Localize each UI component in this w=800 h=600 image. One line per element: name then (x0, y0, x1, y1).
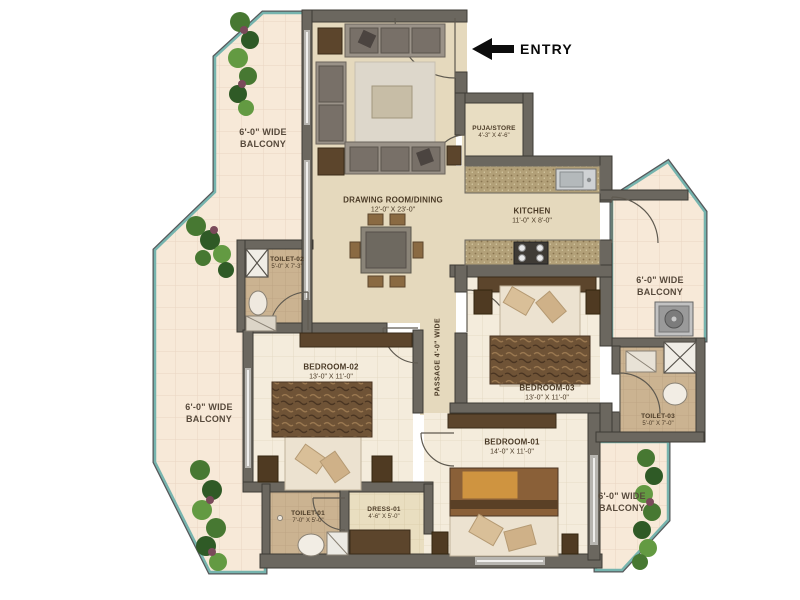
room-label-bedroom2: BEDROOM-02 13'-0" X 11'-0" (303, 362, 358, 381)
room-label-passage: PASSAGE 4'-0" WIDE (435, 318, 442, 396)
room-dims: 14'-0" X 11'-0" (484, 448, 539, 457)
room-name: KITCHEN (512, 206, 552, 216)
room-dims: 5'-0" X 7'-0" (641, 421, 675, 429)
room-dims: 11'-0" X 8'-0" (512, 217, 552, 226)
room-name: TOILET-03 (641, 413, 675, 421)
floor-plan: ENTRY DRAWING ROOM/DINING 12'-0" X 23'-0… (0, 0, 800, 600)
bed-bedroom2 (258, 382, 392, 490)
room-dims: 13'-0" X 11'-0" (519, 394, 574, 403)
sofa-set (316, 24, 445, 175)
room-name: TOILET-01 (291, 510, 325, 518)
kitchen-sink (556, 169, 596, 190)
room-label-dress: DRESS-01 4'-6" X 5'-0" (367, 506, 400, 522)
room-label-drawing: DRAWING ROOM/DINING 12'-0" X 23'-0" (343, 195, 443, 214)
room-dims: 13'-0" X 11'-0" (303, 373, 358, 382)
entry-arrow-icon (472, 38, 514, 60)
room-dims: 4'-6" X 5'-0" (367, 514, 400, 522)
bed-bedroom1 (432, 468, 578, 556)
room-name: DRESS-01 (367, 506, 400, 514)
room-label-toilet2: TOILET-02 5'-0" X 7'-3" (270, 256, 304, 272)
room-name: DRAWING ROOM/DINING (343, 195, 443, 205)
room-name: BEDROOM-01 (484, 437, 539, 447)
room-dims: 7'-0" X 5'-0" (291, 518, 325, 526)
ac-unit (655, 302, 693, 336)
room-dims: 5'-0" X 7'-3" (270, 264, 304, 272)
room-dims: 4'-3" X 4'-6" (472, 133, 515, 141)
balcony-label-right: 6'-0" WIDE BALCONY (629, 274, 691, 298)
balcony-label-top-left: 6'-0" WIDE BALCONY (232, 126, 294, 150)
room-label-kitchen: KITCHEN 11'-0" X 8'-0" (512, 206, 552, 225)
room-label-puja: PUJA/STORE 4'-3" X 4'-6" (472, 125, 515, 141)
room-label-bedroom3: BEDROOM-03 13'-0" X 11'-0" (519, 383, 574, 402)
room-name: PUJA/STORE (472, 125, 515, 133)
room-label-toilet1: TOILET-01 7'-0" X 5'-0" (291, 510, 325, 526)
stove (514, 242, 548, 264)
room-name: BEDROOM-02 (303, 362, 358, 372)
balcony-label-left: 6'-0" WIDE BALCONY (178, 401, 240, 425)
entry-label: ENTRY (520, 41, 573, 57)
room-label-toilet3: TOILET-03 5'-0" X 7'-0" (641, 413, 675, 429)
balcony-label-bottom-right: 6'-0" WIDE BALCONY (591, 490, 653, 514)
room-name: TOILET-02 (270, 256, 304, 264)
room-dims: 12'-0" X 23'-0" (343, 206, 443, 215)
room-name: BEDROOM-03 (519, 383, 574, 393)
room-label-bedroom1: BEDROOM-01 14'-0" X 11'-0" (484, 437, 539, 456)
